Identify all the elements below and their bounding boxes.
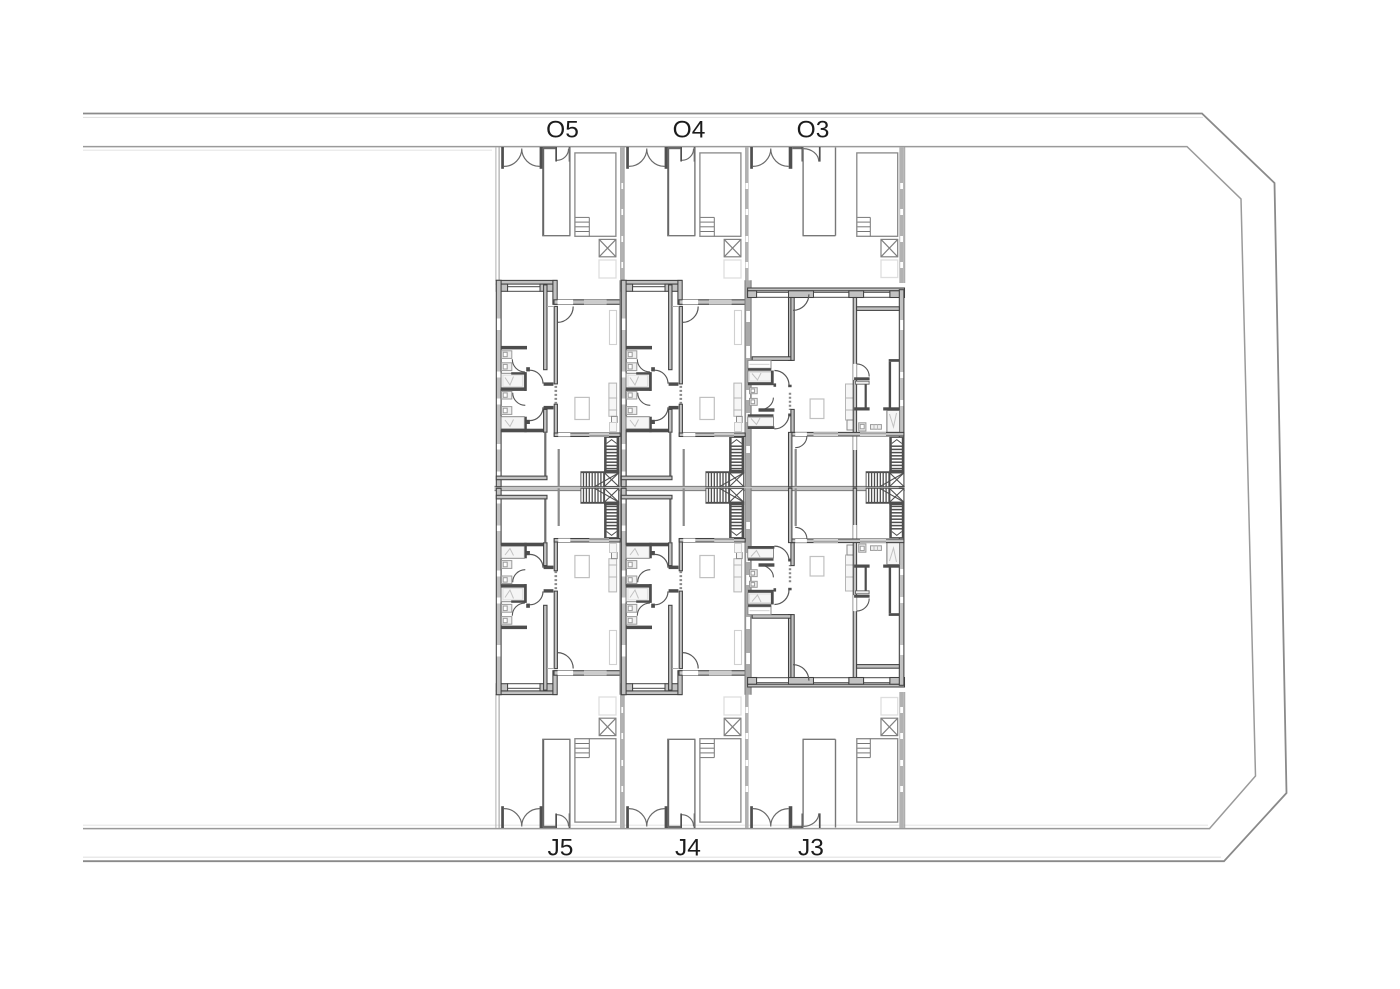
svg-text:O5: O5 — [546, 117, 579, 144]
svg-text:J4: J4 — [675, 835, 701, 862]
svg-text:J5: J5 — [548, 835, 574, 862]
svg-text:J3: J3 — [798, 835, 824, 862]
svg-text:O3: O3 — [797, 117, 830, 144]
svg-text:O4: O4 — [673, 117, 706, 144]
